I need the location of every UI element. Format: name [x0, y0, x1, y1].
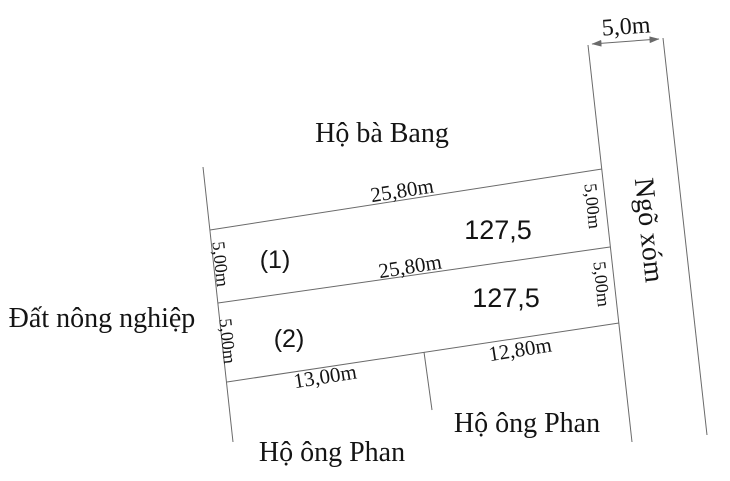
bottom-left-dimension-label: 13,00m — [292, 360, 359, 394]
plot1-left-width-label: 5,00m — [208, 240, 233, 287]
road-width-label: 5,0m — [601, 12, 652, 41]
plot2-left-width-label: 5,00m — [215, 317, 240, 364]
bottom-neighbors-divider-line — [424, 352, 432, 410]
sketch-svg: 5,0m Ngõ xóm Hộ bà Bang Đất nông nghiệp … — [0, 0, 730, 481]
road-name-label: Ngõ xóm — [628, 176, 670, 284]
road-right-edge-line — [663, 38, 707, 435]
plot2-number-label: (2) — [274, 325, 305, 353]
left-boundary-line — [203, 167, 233, 442]
land-plot-sketch: 5,0m Ngõ xóm Hộ bà Bang Đất nông nghiệp … — [0, 0, 730, 481]
plot1-right-width-label: 5,00m — [580, 182, 605, 229]
bottom-right-dimension-label: 12,80m — [487, 333, 554, 367]
plot2-area-label: 127,5 — [472, 283, 540, 313]
plot1-area-label: 127,5 — [464, 215, 532, 245]
neighbor-left-label: Đất nông nghiệp — [9, 303, 196, 334]
road-left-edge-line — [588, 45, 632, 442]
neighbor-bottom-right-label: Hộ ông Phan — [454, 408, 600, 439]
neighbor-top-label: Hộ bà Bang — [315, 118, 449, 149]
plot1-number-label: (1) — [260, 246, 291, 274]
plot2-front-dimension-label: 25,80m — [377, 250, 444, 284]
plot2-right-width-label: 5,00m — [589, 260, 614, 307]
plot1-front-dimension-label: 25,80m — [369, 174, 436, 208]
neighbor-bottom-left-label: Hộ ông Phan — [259, 437, 405, 468]
